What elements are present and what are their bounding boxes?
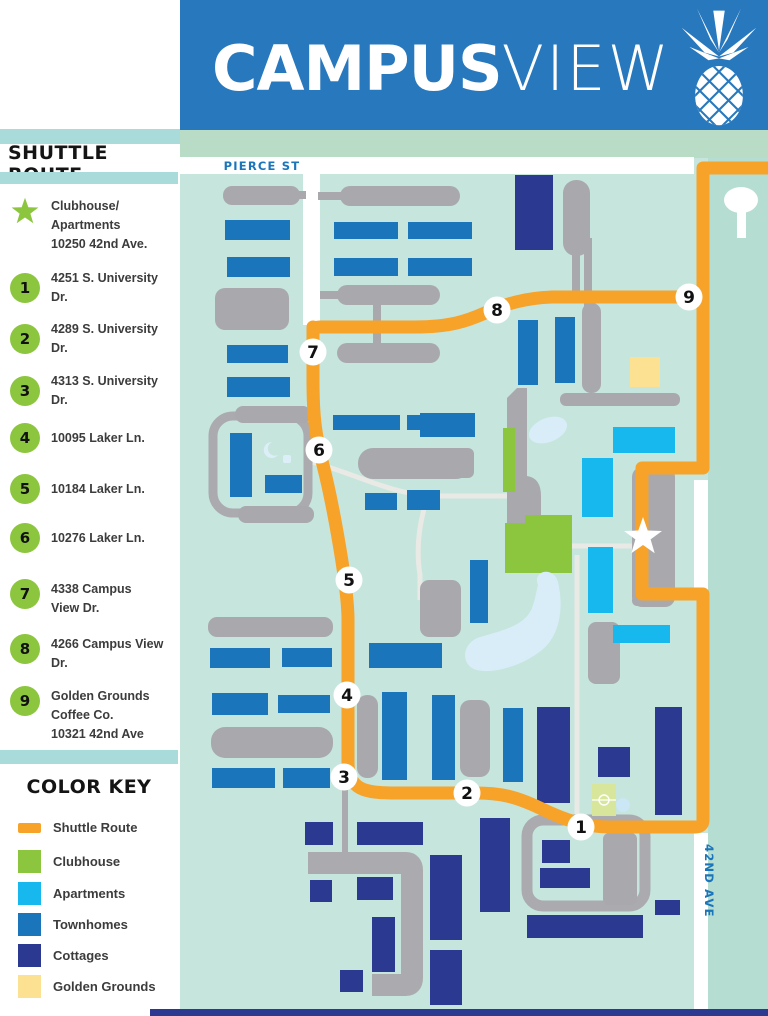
brand-title-light: VIEW [502,32,671,105]
colorkey-row-apartments: Apartments [18,882,178,905]
stop-3-badge: 3 [10,376,40,406]
cottages-swatch [18,944,41,967]
stop-4-badge: 4 [10,423,40,453]
brand-title: CAMPUSVIEW [212,38,671,100]
stop-6-badge: 6 [10,523,40,553]
accent-bar-divider [0,750,178,764]
svg-text:9: 9 [683,288,695,308]
map-stop-6: 6 [306,437,333,464]
stop-1-badge: 1 [10,273,40,303]
colorkey-row-cottages: Cottages [18,944,178,967]
sidebar: SHUTTLE ROUTE Clubhouse/ Apartments 1025… [0,0,180,1016]
legend-item-9: 9 Golden Grounds Coffee Co. 10321 42nd A… [10,686,178,744]
legend-item-label: 4266 Campus View Dr. [51,634,178,673]
poster-page: CAMPUSVIEW S [0,0,768,1016]
42nd-ave-label: 42ND AVE [702,844,716,918]
header-banner: CAMPUSVIEW [180,0,768,130]
legend-item-label: 4338 Campus View Dr. [51,579,178,618]
map-stop-7: 7 [300,339,327,366]
legend-item-1: 1 4251 S. University Dr. [10,268,178,307]
legend-item-2: 2 4289 S. University Dr. [10,319,178,358]
svg-text:1: 1 [575,818,587,838]
clubhouse-star-icon [10,196,40,226]
colorkey-row-shuttle: Shuttle Route [18,820,178,835]
stop-9-badge: 9 [10,686,40,716]
legend-item-label: 4289 S. University Dr. [51,319,178,358]
svg-text:5: 5 [343,571,355,591]
legend-item-label: 10095 Laker Ln. [51,428,178,448]
legend-item-clubhouse: Clubhouse/ Apartments 10250 42nd Ave. [10,196,178,254]
legend-item-5: 5 10184 Laker Ln. [10,474,178,504]
townhomes-swatch [18,913,41,936]
pierce-st-label: PIERCE ST [224,159,301,173]
footer-bar [150,1009,768,1016]
golden-grounds-building [630,357,660,387]
svg-text:7: 7 [307,343,319,363]
legend-item-6: 6 10276 Laker Ln. [10,523,178,553]
map-stop-3: 3 [331,764,358,791]
campus-map: 1 2 3 4 5 6 7 8 9 PIERCE ST 42ND AVE [180,130,768,1016]
legend-item-label: 4313 S. University Dr. [51,371,178,410]
soccer-field [592,784,616,816]
map-stop-4: 4 [334,682,361,709]
colorkey-row-townhomes: Townhomes [18,913,178,936]
svg-text:4: 4 [341,686,353,706]
apartments-swatch [18,882,41,905]
legend-item-3: 3 4313 S. University Dr. [10,371,178,410]
svg-text:3: 3 [338,768,350,788]
legend-item-label: Clubhouse/ Apartments 10250 42nd Ave. [51,196,178,254]
legend-item-4: 4 10095 Laker Ln. [10,423,178,453]
legend-item-label: 10184 Laker Ln. [51,479,178,499]
legend-item-label: 4251 S. University Dr. [51,268,178,307]
shuttle-route-swatch [18,823,41,833]
colorkey-row-golden-grounds: Golden Grounds [18,975,178,998]
stop-2-badge: 2 [10,324,40,354]
clubhouse-swatch [18,850,41,873]
svg-text:6: 6 [313,441,325,461]
stop-8-badge: 8 [10,634,40,664]
map-stop-9: 9 [676,284,703,311]
svg-text:2: 2 [461,784,473,804]
color-key-heading: COLOR KEY [0,776,178,798]
legend-item-label: 10276 Laker Ln. [51,528,178,548]
legend-item-7: 7 4338 Campus View Dr. [10,579,178,618]
pineapple-icon [676,2,762,130]
colorkey-row-clubhouse: Clubhouse [18,850,178,873]
svg-text:8: 8 [491,301,503,321]
brand-title-bold: CAMPUS [212,32,502,105]
stop-7-badge: 7 [10,579,40,609]
map-stop-8: 8 [484,297,511,324]
map-stop-2: 2 [454,780,481,807]
accent-bar-under-heading [0,172,178,184]
golden-grounds-swatch [18,975,41,998]
stop-5-badge: 5 [10,474,40,504]
legend-item-8: 8 4266 Campus View Dr. [10,634,178,673]
map-stop-1: 1 [568,814,595,841]
legend-item-label: Golden Grounds Coffee Co. 10321 42nd Ave [51,686,178,744]
map-stop-5: 5 [336,567,363,594]
